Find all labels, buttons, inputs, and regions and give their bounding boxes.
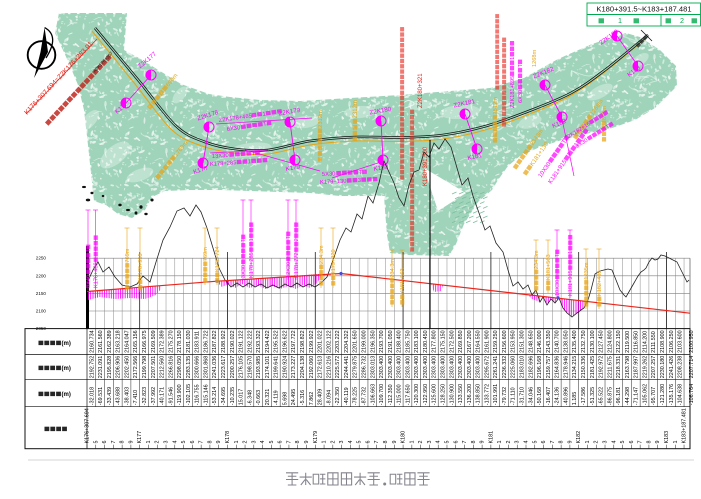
svg-text:2: 2 — [294, 238, 300, 241]
svg-text:2204.322: 2204.322 — [344, 330, 350, 352]
svg-text:2: 2 — [506, 441, 512, 444]
svg-text:2: 2 — [680, 16, 684, 25]
svg-text:2: 2 — [330, 441, 336, 444]
svg-text:2198.570: 2198.570 — [247, 356, 253, 378]
svg-text:2210.216: 2210.216 — [326, 356, 332, 378]
svg-text:2303.400: 2303.400 — [441, 356, 447, 378]
svg-text:2303.400: 2303.400 — [423, 356, 429, 378]
svg-text:K179+220: K179+220 — [331, 249, 337, 275]
svg-text:2163.218: 2163.218 — [116, 330, 122, 352]
svg-text:2201.022: 2201.022 — [318, 330, 324, 352]
svg-text:2181.425: 2181.425 — [590, 356, 596, 378]
svg-text:2188.922: 2188.922 — [221, 330, 227, 352]
svg-text:-0.663: -0.663 — [256, 390, 262, 405]
svg-text:2201.650: 2201.650 — [353, 330, 359, 352]
svg-text:2114.200: 2114.200 — [642, 331, 648, 353]
svg-text:3: 3 — [358, 178, 362, 184]
svg-text:2196.350: 2196.350 — [370, 330, 376, 352]
svg-text:(m): (m) — [62, 341, 71, 347]
svg-text:K182+485: K182+485 — [597, 270, 603, 296]
svg-text:2225.572: 2225.572 — [335, 356, 341, 378]
svg-text:K176+307.694: K176+307.694 — [85, 408, 91, 443]
svg-text:2183.100: 2183.100 — [414, 330, 420, 352]
svg-text:2211.675: 2211.675 — [607, 356, 613, 378]
svg-text:5: 5 — [181, 441, 187, 444]
svg-text:8X40: 8X40 — [86, 275, 92, 288]
svg-text:2138.050: 2138.050 — [563, 330, 569, 352]
svg-text:5: 5 — [445, 441, 451, 444]
svg-text:8: 8 — [295, 441, 301, 444]
svg-text:2192.060: 2192.060 — [309, 356, 315, 378]
svg-text:2169.850: 2169.850 — [458, 330, 464, 352]
svg-text:-138.850: -138.850 — [476, 384, 482, 405]
svg-text:-109.700: -109.700 — [379, 384, 385, 405]
svg-text:2261.241: 2261.241 — [493, 356, 499, 378]
svg-text:K183+187.481: K183+187.481 — [682, 408, 688, 443]
svg-text:5.698: 5.698 — [283, 392, 289, 406]
svg-text:K178+285: K178+285 — [249, 252, 255, 278]
svg-text:2298.050: 2298.050 — [177, 356, 183, 378]
svg-text:3X30: 3X30 — [241, 265, 247, 278]
svg-text:K181+563: K181+563 — [400, 268, 406, 294]
svg-text:7: 7 — [374, 441, 380, 444]
svg-text:2183.911: 2183.911 — [195, 331, 201, 353]
svg-text:3: 3 — [515, 441, 521, 444]
svg-text:2116.850: 2116.850 — [634, 331, 640, 353]
svg-text:2153.950: 2153.950 — [511, 330, 517, 352]
svg-text:-33.439: -33.439 — [107, 387, 113, 405]
svg-text:-125.600: -125.600 — [432, 384, 438, 405]
svg-text:2312m: 2312m — [318, 110, 324, 128]
svg-text:10X30: 10X30 — [555, 280, 561, 296]
svg-text:2161.900: 2161.900 — [484, 330, 490, 352]
svg-text:-119.900: -119.900 — [177, 384, 183, 405]
svg-text:5: 5 — [269, 441, 275, 444]
svg-text:2159.757: 2159.757 — [546, 356, 552, 378]
svg-text:-10.235: -10.235 — [230, 387, 236, 405]
svg-text:2208.238: 2208.238 — [678, 356, 684, 378]
svg-text:2241.426: 2241.426 — [669, 356, 675, 378]
svg-text:2195.828: 2195.828 — [107, 356, 113, 378]
svg-text:9: 9 — [480, 441, 486, 444]
svg-text:2199.641: 2199.641 — [274, 356, 280, 378]
svg-text:2122.150: 2122.150 — [616, 330, 622, 352]
svg-text:2198.822: 2198.822 — [300, 330, 306, 352]
svg-text:9: 9 — [128, 441, 134, 444]
svg-text:2206.906: 2206.906 — [116, 356, 122, 378]
svg-text:769m: 769m — [203, 247, 209, 261]
svg-text:-37.992: -37.992 — [151, 387, 157, 405]
svg-text:-117.650: -117.650 — [405, 384, 411, 405]
svg-text:K181+563: K181+563 — [546, 254, 552, 280]
svg-text:-135.176: -135.176 — [669, 384, 675, 405]
svg-text:2166.975: 2166.975 — [142, 330, 148, 352]
svg-text:2186.722: 2186.722 — [203, 330, 209, 352]
svg-text:-5.316: -5.316 — [300, 390, 306, 405]
svg-text:-4.119: -4.119 — [274, 390, 280, 405]
svg-text:2191.050: 2191.050 — [388, 330, 394, 352]
svg-text:2146.000: 2146.000 — [537, 330, 543, 352]
svg-text:2176.105: 2176.105 — [239, 356, 245, 378]
svg-text:T: T — [518, 64, 524, 68]
svg-text:2167.200: 2167.200 — [467, 330, 473, 352]
svg-text:2172.613: 2172.613 — [318, 356, 324, 378]
svg-text:-32.823: -32.823 — [142, 387, 148, 405]
svg-text:9: 9 — [216, 441, 222, 444]
svg-text:6: 6 — [366, 441, 372, 444]
svg-text:-130.900: -130.900 — [449, 384, 455, 405]
svg-text:234.3m: 234.3m — [534, 250, 540, 269]
svg-text:2207.714: 2207.714 — [689, 356, 695, 378]
svg-text:2266.816: 2266.816 — [168, 356, 174, 378]
svg-text:2225.060: 2225.060 — [511, 356, 517, 378]
svg-text:2159.250: 2159.250 — [493, 330, 499, 352]
svg-text:2303.400: 2303.400 — [449, 356, 455, 378]
svg-text:2303.400: 2303.400 — [414, 356, 420, 378]
svg-text:6: 6 — [453, 441, 459, 444]
svg-text:8: 8 — [120, 441, 126, 444]
svg-text:234.3m: 234.3m — [390, 259, 396, 278]
svg-text:2512m: 2512m — [493, 97, 499, 115]
svg-text:3: 3 — [427, 441, 433, 444]
svg-text:7: 7 — [638, 441, 644, 444]
svg-text:(m): (m) — [62, 366, 71, 372]
svg-text:K176+955: K176+955 — [138, 253, 144, 279]
svg-text:2100.950: 2100.950 — [689, 330, 695, 352]
svg-text:2303.400: 2303.400 — [405, 356, 411, 378]
svg-text:2200.257: 2200.257 — [230, 356, 236, 378]
svg-text:2207.501: 2207.501 — [151, 356, 157, 378]
svg-text:20.321: 20.321 — [265, 389, 271, 406]
svg-text:2: 2 — [243, 441, 249, 444]
svg-text:2177.800: 2177.800 — [432, 330, 438, 352]
svg-text:2223.617: 2223.617 — [221, 356, 227, 378]
svg-text:T: T — [555, 254, 561, 258]
svg-text:2: 2 — [594, 441, 600, 444]
svg-text:1: 1 — [618, 16, 622, 25]
svg-text:1: 1 — [510, 57, 516, 60]
svg-text:1: 1 — [234, 441, 240, 444]
svg-text:2193.700: 2193.700 — [379, 330, 385, 352]
svg-text:K183: K183 — [664, 431, 670, 444]
svg-text:K178: K178 — [225, 431, 231, 444]
svg-text:2192.222: 2192.222 — [247, 330, 253, 352]
svg-text:2182.696: 2182.696 — [528, 356, 534, 378]
svg-text:2219.262: 2219.262 — [642, 356, 648, 378]
svg-text:2174.101: 2174.101 — [265, 356, 271, 378]
svg-text:2192.972: 2192.972 — [599, 356, 605, 378]
svg-text:2150.336: 2150.336 — [581, 356, 587, 378]
svg-text:-40.119: -40.119 — [344, 387, 350, 405]
svg-text:5: 5 — [357, 441, 363, 444]
svg-text:-86.875: -86.875 — [607, 387, 613, 405]
svg-text:9: 9 — [392, 441, 398, 444]
svg-text:6: 6 — [102, 441, 108, 444]
svg-text:2127.450: 2127.450 — [599, 330, 605, 352]
svg-text:2303.013: 2303.013 — [370, 356, 376, 378]
svg-text:2164.550: 2164.550 — [476, 330, 482, 352]
svg-text:-115.000: -115.000 — [397, 384, 403, 405]
svg-text:2172.389: 2172.389 — [160, 330, 166, 352]
svg-text:9: 9 — [567, 441, 573, 444]
svg-text:-120.300: -120.300 — [414, 384, 420, 405]
svg-text:K180+391.5~K183+187.481: K180+391.5~K183+187.481 — [596, 5, 691, 14]
svg-text:2188.400: 2188.400 — [397, 330, 403, 352]
svg-text:3: 3 — [164, 441, 170, 444]
svg-text:2283.135: 2283.135 — [186, 356, 192, 378]
svg-text:2175.270: 2175.270 — [168, 330, 174, 352]
svg-text:6: 6 — [629, 441, 635, 444]
svg-text:-8.094: -8.094 — [326, 390, 332, 405]
svg-text:8: 8 — [471, 441, 477, 444]
svg-text:2303.400: 2303.400 — [432, 356, 438, 378]
svg-text:2197.722: 2197.722 — [291, 330, 297, 352]
svg-text:2172.500: 2172.500 — [449, 330, 455, 352]
svg-text:2301.868: 2301.868 — [203, 356, 209, 378]
svg-text:2199.798: 2199.798 — [142, 356, 148, 378]
svg-text:1: 1 — [585, 441, 591, 444]
svg-text:2111.550: 2111.550 — [651, 331, 657, 353]
svg-text:2140.700: 2140.700 — [555, 330, 561, 352]
svg-text:2183.010: 2183.010 — [520, 356, 526, 378]
svg-text:2151.300: 2151.300 — [520, 330, 526, 352]
svg-text:1268m: 1268m — [532, 50, 538, 67]
svg-text:3: 3 — [251, 441, 257, 444]
svg-text:-105.062: -105.062 — [642, 384, 648, 405]
svg-text:2185.750: 2185.750 — [405, 330, 411, 352]
svg-text:T: T — [86, 249, 92, 253]
svg-text:2303.400: 2303.400 — [397, 356, 403, 378]
svg-text:2164.047: 2164.047 — [124, 330, 130, 352]
svg-text:1235m: 1235m — [584, 262, 590, 279]
svg-text:7: 7 — [111, 441, 117, 444]
svg-text:2124.800: 2124.800 — [607, 330, 613, 352]
svg-text:-95.707: -95.707 — [651, 387, 657, 405]
svg-text:Z2K180+321: Z2K180+321 — [418, 73, 424, 108]
svg-text:-87.732: -87.732 — [362, 387, 368, 405]
svg-text:K178+772: K178+772 — [294, 252, 300, 278]
svg-text:6: 6 — [541, 441, 547, 444]
svg-text:-91.546: -91.546 — [168, 387, 174, 405]
svg-text:6: 6 — [190, 441, 196, 444]
svg-text:4: 4 — [436, 441, 442, 444]
svg-text:2173.227: 2173.227 — [291, 356, 297, 378]
svg-text:2191.122: 2191.122 — [239, 330, 245, 352]
svg-text:1: 1 — [249, 238, 255, 241]
svg-text:2160.734: 2160.734 — [89, 330, 95, 352]
svg-text:1: 1 — [409, 441, 415, 444]
svg-text:2181.030: 2181.030 — [186, 330, 192, 352]
svg-text:K181: K181 — [488, 431, 494, 444]
svg-text:2230.180: 2230.180 — [660, 356, 666, 378]
svg-text:8: 8 — [207, 441, 213, 444]
svg-text:769m: 769m — [125, 248, 131, 262]
svg-text:2195.522: 2195.522 — [274, 330, 280, 352]
svg-text:5: 5 — [93, 441, 99, 444]
svg-text:1.185: 1.185 — [572, 392, 578, 406]
svg-text:-7.410: -7.410 — [133, 390, 139, 405]
svg-text:-65.522: -65.522 — [599, 387, 605, 405]
svg-text:K179: K179 — [313, 431, 319, 444]
svg-text:1: 1 — [248, 159, 252, 165]
svg-text:K182: K182 — [576, 431, 582, 444]
svg-text:1: 1 — [673, 441, 679, 444]
svg-text:2196.622: 2196.622 — [283, 330, 289, 352]
svg-text:-31.710: -31.710 — [520, 387, 526, 405]
svg-text:2178.946: 2178.946 — [563, 356, 569, 378]
svg-text:2162.389: 2162.389 — [107, 330, 113, 352]
svg-text:2312m: 2312m — [353, 100, 359, 118]
svg-text:4: 4 — [260, 441, 266, 444]
svg-text:2202.122: 2202.122 — [326, 330, 332, 352]
svg-text:7.862: 7.862 — [309, 392, 315, 406]
svg-text:-104.638: -104.638 — [678, 384, 684, 405]
svg-text:2148.650: 2148.650 — [528, 330, 534, 352]
svg-text:2: 2 — [418, 441, 424, 444]
svg-text:-122.950: -122.950 — [423, 384, 429, 405]
svg-text:2300.666: 2300.666 — [195, 356, 201, 378]
svg-text:2231.091: 2231.091 — [98, 356, 104, 378]
svg-text:2132.750: 2132.750 — [581, 330, 587, 352]
svg-text:2187.997: 2187.997 — [634, 356, 640, 378]
svg-text:-133.550: -133.550 — [458, 384, 464, 405]
svg-text:-69.531: -69.531 — [98, 387, 104, 405]
svg-text:K180: K180 — [401, 431, 407, 444]
svg-text:2180.450: 2180.450 — [423, 330, 429, 352]
svg-text:28.409: 28.409 — [318, 389, 324, 406]
svg-text:2103.600: 2103.600 — [678, 330, 684, 352]
svg-text:2100: 2100 — [36, 309, 47, 314]
svg-text:-78.225: -78.225 — [353, 387, 359, 405]
svg-text:9: 9 — [304, 441, 310, 444]
svg-text:-6.348: -6.348 — [247, 390, 253, 405]
svg-text:2165.156: 2165.156 — [133, 330, 139, 352]
svg-text:-71.147: -71.147 — [634, 387, 640, 405]
svg-text:2164.836: 2164.836 — [555, 356, 561, 378]
svg-text:-112.350: -112.350 — [388, 384, 394, 405]
svg-text:2106.250: 2106.250 — [669, 330, 675, 352]
svg-text:5X30: 5X30 — [322, 171, 336, 178]
svg-text:2295.672: 2295.672 — [484, 356, 490, 378]
svg-text:4: 4 — [524, 441, 530, 444]
svg-text:24.495: 24.495 — [291, 389, 297, 406]
svg-text:-71.110: -71.110 — [511, 387, 517, 405]
svg-text:-96.181: -96.181 — [616, 387, 622, 405]
svg-text:7: 7 — [550, 441, 556, 444]
svg-text:2212.560: 2212.560 — [160, 356, 166, 378]
svg-text:15.017: 15.017 — [239, 389, 245, 406]
svg-text:-22.350: -22.350 — [335, 387, 341, 405]
svg-text:2194.422: 2194.422 — [265, 330, 271, 352]
svg-text:8: 8 — [646, 441, 652, 444]
svg-text:2196.168: 2196.168 — [537, 356, 543, 378]
svg-text:2286.732: 2286.732 — [362, 356, 368, 378]
svg-text:-121.280: -121.280 — [660, 384, 666, 405]
svg-text:-79.732: -79.732 — [502, 387, 508, 405]
svg-text:234.3m: 234.3m — [319, 245, 325, 264]
svg-text:2203.222: 2203.222 — [335, 330, 341, 352]
svg-text:3: 3 — [603, 441, 609, 444]
svg-text:-116.755: -116.755 — [195, 384, 201, 405]
svg-text:-128.250: -128.250 — [441, 384, 447, 405]
svg-text:2207.257: 2207.257 — [651, 356, 657, 378]
svg-text:4: 4 — [611, 441, 617, 444]
svg-text:2192.752: 2192.752 — [89, 356, 95, 378]
svg-text:5: 5 — [532, 441, 538, 444]
svg-text:-34.695: -34.695 — [221, 387, 227, 405]
svg-text:-40.896: -40.896 — [563, 387, 569, 405]
svg-text:1: 1 — [568, 251, 574, 254]
svg-text:2193.985: 2193.985 — [256, 356, 262, 378]
svg-text:2135.400: 2135.400 — [572, 330, 578, 352]
svg-text:5: 5 — [620, 441, 626, 444]
svg-text:2250: 2250 — [36, 256, 47, 261]
svg-text:-136.200: -136.200 — [467, 384, 473, 405]
svg-text:-102.105: -102.105 — [186, 384, 192, 405]
svg-text:2156.600: 2156.600 — [502, 330, 508, 352]
svg-text:2178.150: 2178.150 — [177, 330, 183, 352]
svg-text:-50.168: -50.168 — [537, 387, 543, 405]
svg-text:-24.136: -24.136 — [555, 387, 561, 405]
svg-text:-53.214: -53.214 — [212, 387, 218, 405]
svg-text:T: T — [286, 236, 292, 240]
svg-text:2303.400: 2303.400 — [476, 356, 482, 378]
svg-text:K177+724: K177+724 — [215, 246, 221, 272]
svg-text:-106.663: -106.663 — [370, 384, 376, 405]
svg-text:-43.688: -43.688 — [116, 387, 122, 405]
svg-text:2190.924: 2190.924 — [283, 356, 289, 378]
svg-text:K176+488: K176+488 — [94, 262, 100, 288]
svg-text:-16.407: -16.407 — [546, 387, 552, 405]
svg-text:2193.322: 2193.322 — [256, 330, 262, 352]
svg-text:2241.036: 2241.036 — [212, 356, 218, 378]
svg-text:-106.764: -106.764 — [689, 384, 695, 405]
svg-text:12X30: 12X30 — [286, 262, 292, 278]
svg-text:2130.100: 2130.100 — [590, 330, 596, 352]
svg-text:2244.441: 2244.441 — [344, 356, 350, 378]
svg-text:1: 1 — [322, 441, 328, 444]
svg-text:-51.325: -51.325 — [590, 387, 596, 405]
svg-text:2236.332: 2236.332 — [502, 356, 508, 378]
svg-text:8: 8 — [559, 441, 565, 444]
svg-text:-101.991: -101.991 — [493, 384, 499, 405]
svg-text:8: 8 — [383, 441, 389, 444]
svg-text:9: 9 — [655, 441, 661, 444]
svg-text:2199.000: 2199.000 — [362, 330, 368, 352]
svg-text:-44.298: -44.298 — [625, 387, 631, 405]
svg-text:6X30: 6X30 — [518, 90, 524, 103]
svg-text:2108.900: 2108.900 — [660, 330, 666, 352]
svg-text:7: 7 — [199, 441, 205, 444]
svg-text:2161.560: 2161.560 — [98, 330, 104, 352]
svg-text:7: 7 — [462, 441, 468, 444]
svg-text:7: 7 — [286, 441, 292, 444]
svg-text:2187.822: 2187.822 — [212, 330, 218, 352]
svg-text:-38.403: -38.403 — [124, 387, 130, 405]
svg-text:2200: 2200 — [36, 273, 47, 278]
svg-text:2190.022: 2190.022 — [230, 330, 236, 352]
svg-text:2303.400: 2303.400 — [467, 356, 473, 378]
svg-text:-115.146: -115.146 — [203, 384, 209, 405]
svg-text:3: 3 — [339, 441, 345, 444]
svg-text:4: 4 — [172, 441, 178, 444]
svg-text:2175.150: 2175.150 — [441, 330, 447, 352]
svg-text:(m): (m) — [62, 392, 71, 398]
svg-text:1: 1 — [146, 441, 152, 444]
svg-text:2119.500: 2119.500 — [625, 331, 631, 353]
svg-text:2303.400: 2303.400 — [379, 356, 385, 378]
svg-text:2163.798: 2163.798 — [625, 356, 631, 378]
